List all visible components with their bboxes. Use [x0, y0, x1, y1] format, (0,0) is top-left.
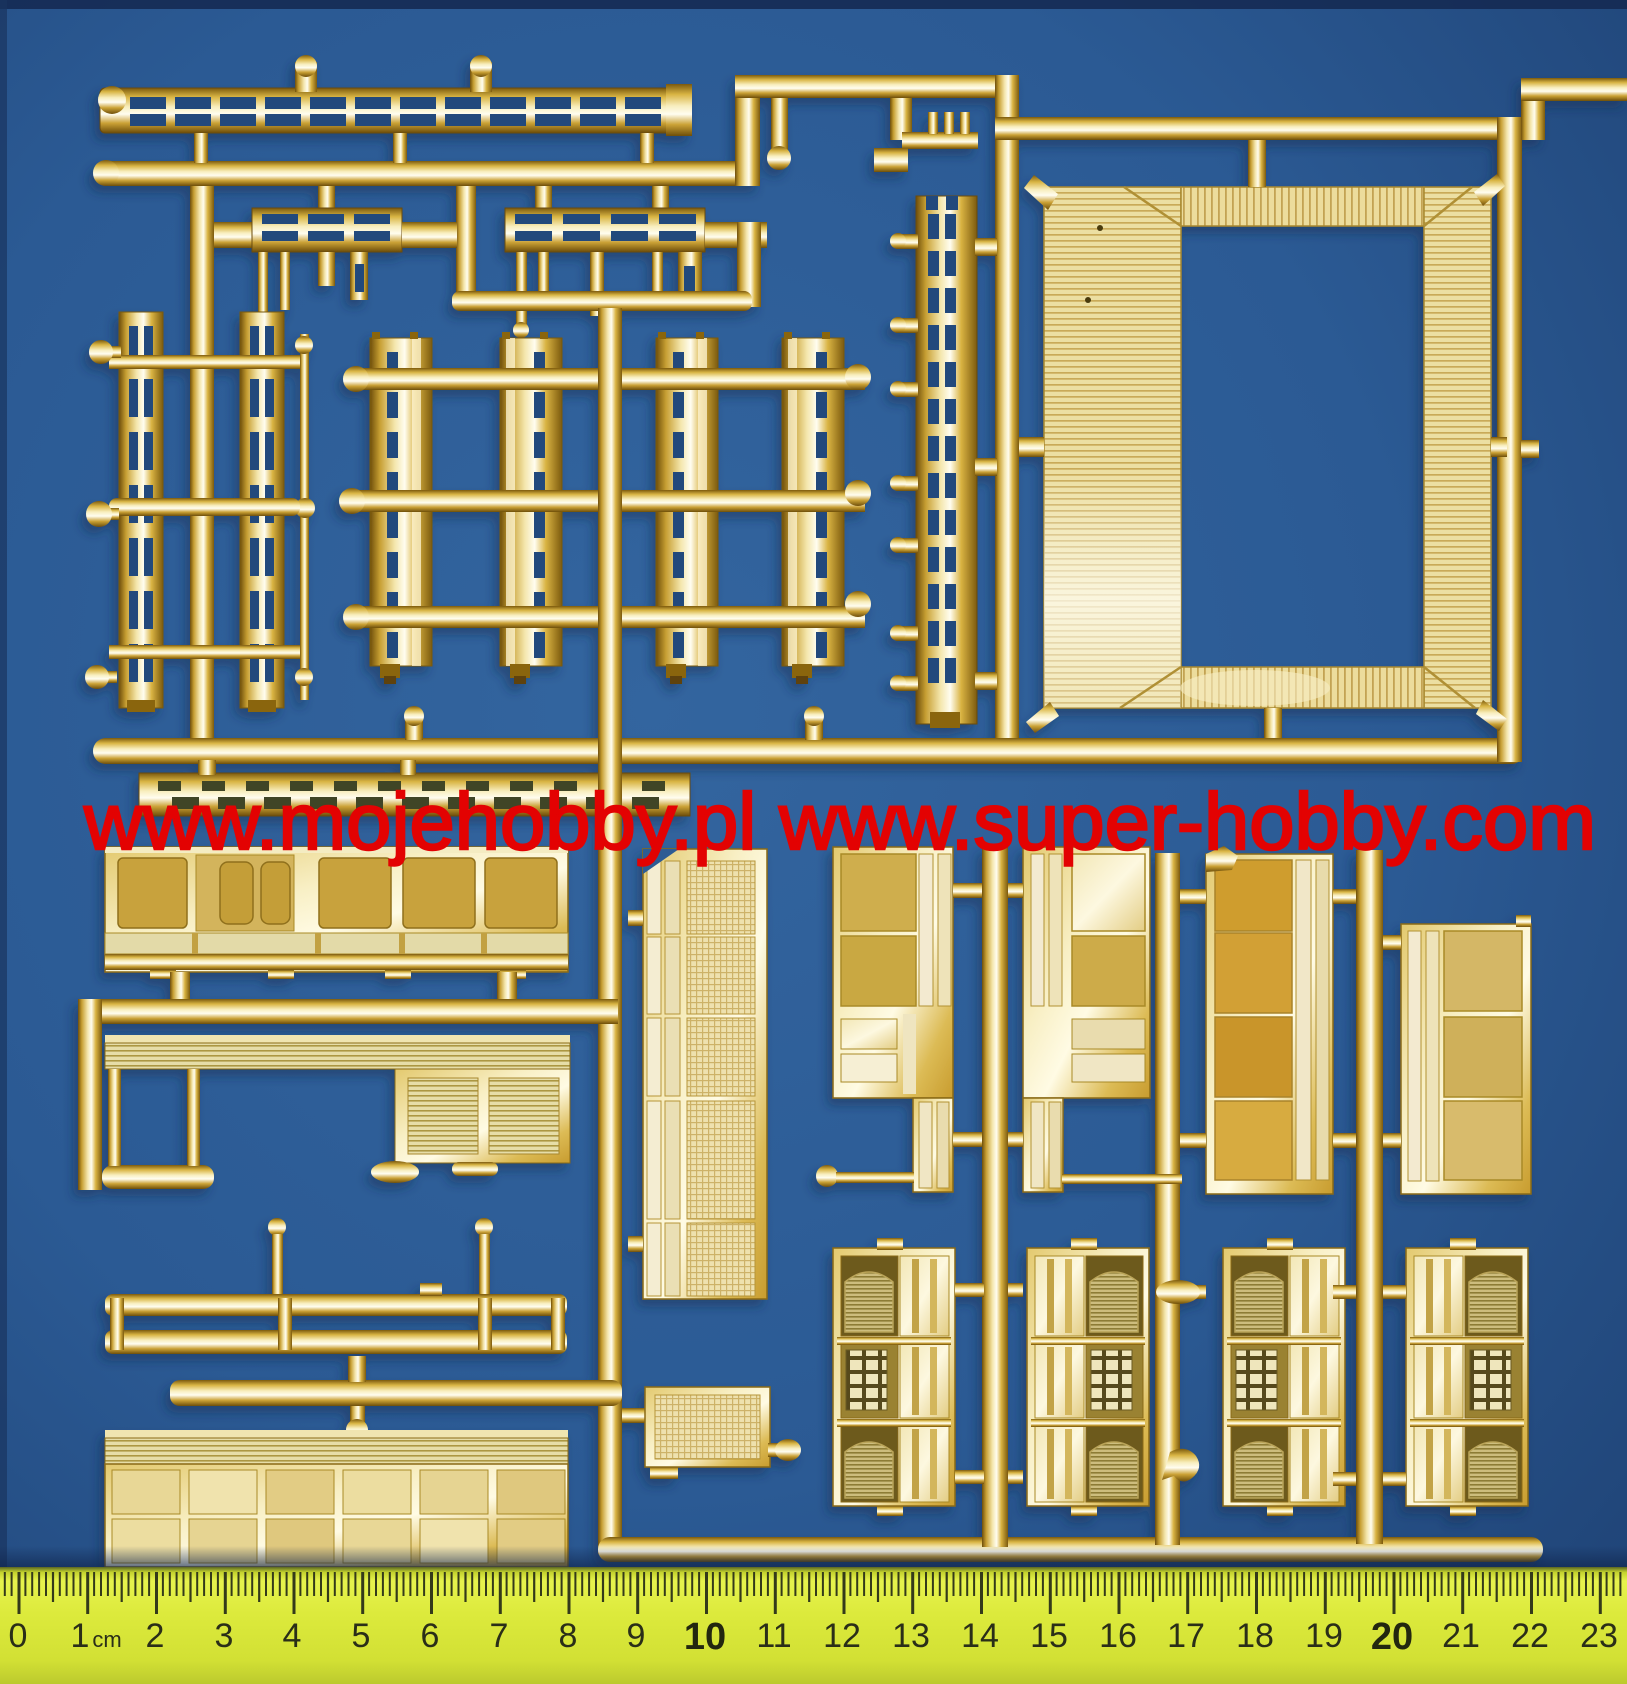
svg-text:14: 14	[961, 1617, 999, 1655]
svg-text:13: 13	[892, 1617, 930, 1655]
svg-text:3: 3	[215, 1617, 234, 1655]
svg-text:22: 22	[1511, 1617, 1549, 1655]
svg-text:www.mojehobby.pl www.super-hob: www.mojehobby.pl www.super-hobby.com	[83, 777, 1596, 866]
svg-text:cm: cm	[92, 1627, 121, 1652]
svg-text:8: 8	[559, 1617, 578, 1655]
svg-text:12: 12	[823, 1617, 861, 1655]
svg-text:5: 5	[352, 1617, 371, 1655]
svg-text:10: 10	[684, 1616, 726, 1658]
svg-text:6: 6	[421, 1617, 440, 1655]
svg-text:9: 9	[627, 1617, 646, 1655]
svg-text:1: 1	[71, 1617, 90, 1655]
svg-text:15: 15	[1030, 1617, 1068, 1655]
svg-text:16: 16	[1099, 1617, 1137, 1655]
svg-text:20: 20	[1371, 1616, 1413, 1658]
svg-text:2: 2	[146, 1617, 165, 1655]
svg-text:19: 19	[1305, 1617, 1343, 1655]
svg-text:7: 7	[490, 1617, 509, 1655]
svg-text:21: 21	[1442, 1617, 1480, 1655]
svg-text:11: 11	[756, 1617, 791, 1655]
svg-text:0: 0	[9, 1617, 28, 1655]
svg-text:17: 17	[1167, 1617, 1205, 1655]
svg-text:18: 18	[1236, 1617, 1274, 1655]
svg-text:4: 4	[283, 1617, 302, 1655]
svg-text:23: 23	[1580, 1617, 1618, 1655]
